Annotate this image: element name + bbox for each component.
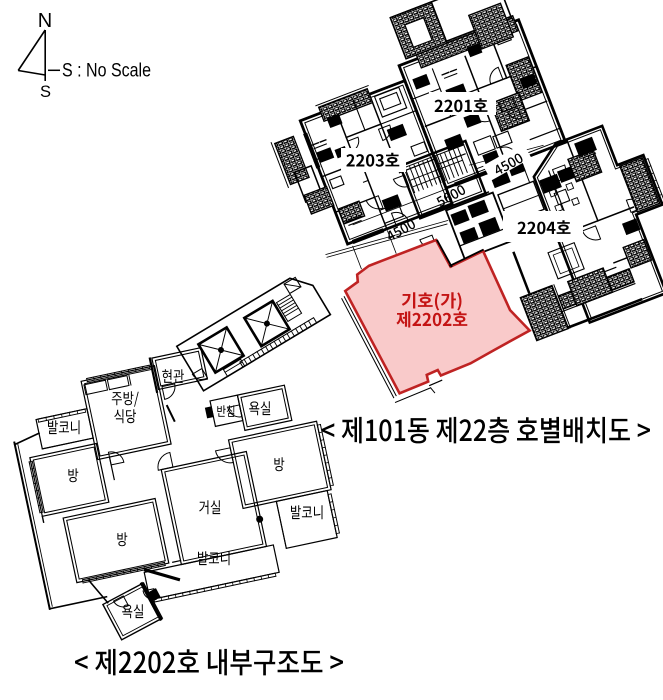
svg-text:N: N <box>38 10 52 32</box>
svg-text:S : No Scale: S : No Scale <box>62 61 151 82</box>
svg-text:S: S <box>40 83 51 101</box>
